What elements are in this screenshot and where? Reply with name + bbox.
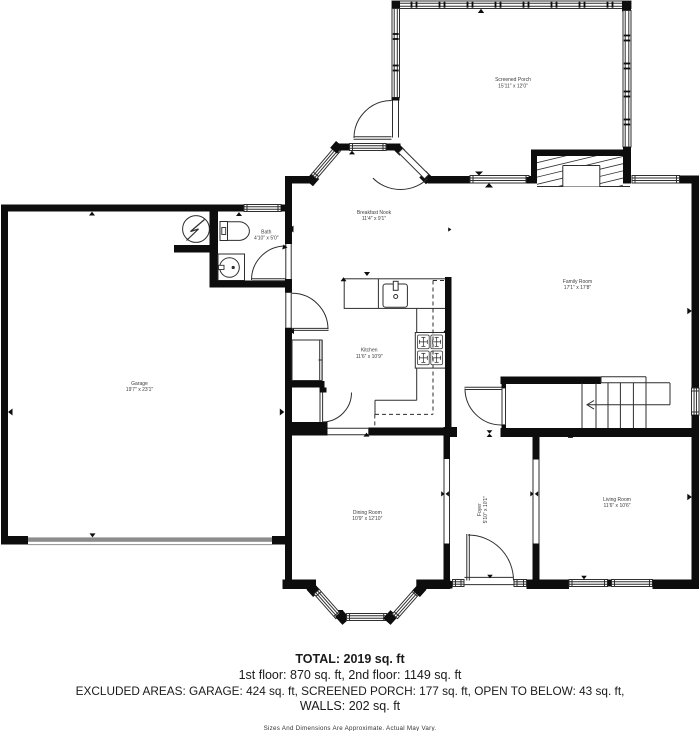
- svg-text:Foyer: Foyer: [477, 503, 483, 516]
- svg-text:5′10″ x 10′1″: 5′10″ x 10′1″: [483, 496, 489, 524]
- svg-text:17′1″ x 17′8″: 17′1″ x 17′8″: [564, 285, 592, 291]
- svg-text:Bath: Bath: [261, 229, 272, 235]
- svg-text:11′6″ x 10′6″: 11′6″ x 10′6″: [603, 503, 630, 509]
- svg-text:11′6″ x 10′9″: 11′6″ x 10′9″: [356, 354, 383, 360]
- svg-text:4′10″ x 5′0″: 4′10″ x 5′0″: [254, 236, 279, 242]
- svg-text:10′9″ x 12′10″: 10′9″ x 12′10″: [352, 516, 382, 522]
- svg-text:Screened Porch: Screened Porch: [495, 77, 531, 83]
- svg-text:Garage: Garage: [131, 381, 148, 387]
- svg-text:19′7″ x 23′1″: 19′7″ x 23′1″: [126, 387, 154, 393]
- svg-text:Kitchen: Kitchen: [361, 348, 378, 354]
- svg-text:Family Room: Family Room: [563, 279, 592, 285]
- svg-text:Breakfast Nook: Breakfast Nook: [357, 210, 392, 216]
- svg-text:Living Room: Living Room: [603, 497, 631, 503]
- svg-text:11′4″ x 9′1″: 11′4″ x 9′1″: [362, 216, 386, 222]
- svg-text:Dining Room: Dining Room: [353, 510, 382, 516]
- svg-text:15′11″ x 12′0″: 15′11″ x 12′0″: [498, 83, 528, 89]
